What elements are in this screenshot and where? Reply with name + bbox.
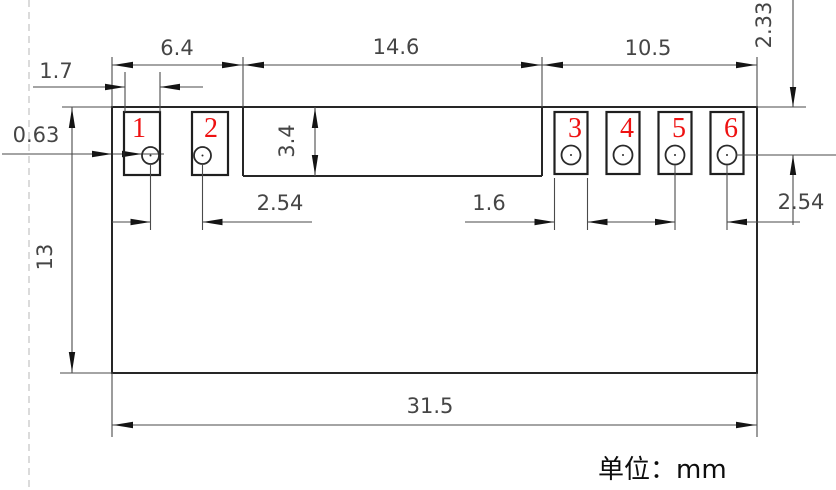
arrow-left-icon — [160, 84, 180, 90]
pad-5-hole-center — [674, 154, 676, 156]
dim-label-top-to-pin-row: 2.33 — [752, 2, 776, 49]
component-body — [112, 107, 757, 373]
arrow-right-icon — [736, 422, 756, 428]
dim-label-right-section-width: 10.5 — [625, 36, 672, 60]
arrow-right-icon — [736, 62, 756, 68]
arrow-left-icon — [113, 422, 133, 428]
arrow-left-icon — [203, 219, 223, 225]
pad-3: 3 — [555, 112, 588, 174]
pad-2-hole-center — [202, 155, 204, 157]
dim-left-section-width: 6.4 — [112, 36, 243, 107]
dim-label-middle-section-width: 14.6 — [373, 35, 420, 59]
pad-3-number: 3 — [568, 113, 582, 144]
dim-right-pad-width: 1.6 — [465, 178, 640, 230]
arrow-right-icon — [105, 84, 125, 90]
dim-label-section-height: 3.4 — [275, 124, 299, 157]
pad-1-number: 1 — [132, 113, 146, 144]
arrow-right-icon — [92, 151, 112, 157]
pad-6-hole-center — [726, 154, 728, 156]
pad-1-hole-center — [150, 155, 152, 157]
component-outline — [112, 107, 757, 373]
arrow-up-icon — [69, 108, 75, 128]
dim-label-left-section-width: 6.4 — [160, 36, 193, 60]
dim-left-pad-width: 1.7 — [33, 59, 203, 112]
arrow-right-icon — [222, 62, 242, 68]
dim-middle-section-width: 14.6 — [243, 35, 542, 107]
arrow-left-icon — [727, 219, 747, 225]
pad-3-hole-center — [570, 154, 572, 156]
unit-note: 单位：mm — [598, 455, 727, 485]
arrow-right-icon — [521, 62, 541, 68]
arrow-right-icon — [535, 219, 555, 225]
pad-6: 6 — [711, 112, 744, 174]
arrow-up-icon — [312, 108, 318, 128]
arrow-left-icon — [588, 219, 608, 225]
pad-4-number: 4 — [620, 113, 634, 144]
arrow-left-icon — [113, 62, 133, 68]
dim-label-right-pin-pitch: 2.54 — [778, 190, 825, 214]
dim-label-body-height: 13 — [33, 244, 57, 271]
pad-2-number: 2 — [204, 113, 218, 144]
arrow-down-icon — [69, 352, 75, 372]
pad-4-hole-center — [622, 154, 624, 156]
dim-section-height: 3.4 — [275, 107, 318, 176]
dim-label-right-pad-width: 1.6 — [472, 191, 505, 215]
arrow-left-icon — [543, 62, 563, 68]
dimension-drawing: 0.63 1 2 3 4 5 6 — [0, 0, 836, 490]
pad-4: 4 — [607, 112, 640, 174]
arrow-down-icon — [312, 155, 318, 175]
arrow-up-icon — [790, 155, 796, 175]
arrow-right-icon — [655, 219, 675, 225]
arrow-left-icon — [244, 62, 264, 68]
pad-5-number: 5 — [672, 113, 686, 144]
arrow-right-icon — [131, 219, 151, 225]
pad-1: 1 — [124, 112, 160, 175]
drawing-canvas: 0.63 1 2 3 4 5 6 — [0, 0, 836, 490]
dim-label-left-pad-width: 1.7 — [39, 59, 72, 83]
dim-overall-width: 31.5 — [112, 373, 757, 437]
pad-5: 5 — [659, 112, 692, 174]
dim-right-section-width: 10.5 — [542, 36, 757, 107]
arrow-down-icon — [790, 87, 796, 107]
pad-2: 2 — [192, 112, 228, 175]
dim-label-overall-width: 31.5 — [407, 394, 454, 418]
dim-label-edge-to-hole: 0.63 — [13, 123, 60, 147]
pad-6-number: 6 — [724, 113, 738, 144]
dim-label-left-pin-pitch: 2.54 — [257, 191, 304, 215]
